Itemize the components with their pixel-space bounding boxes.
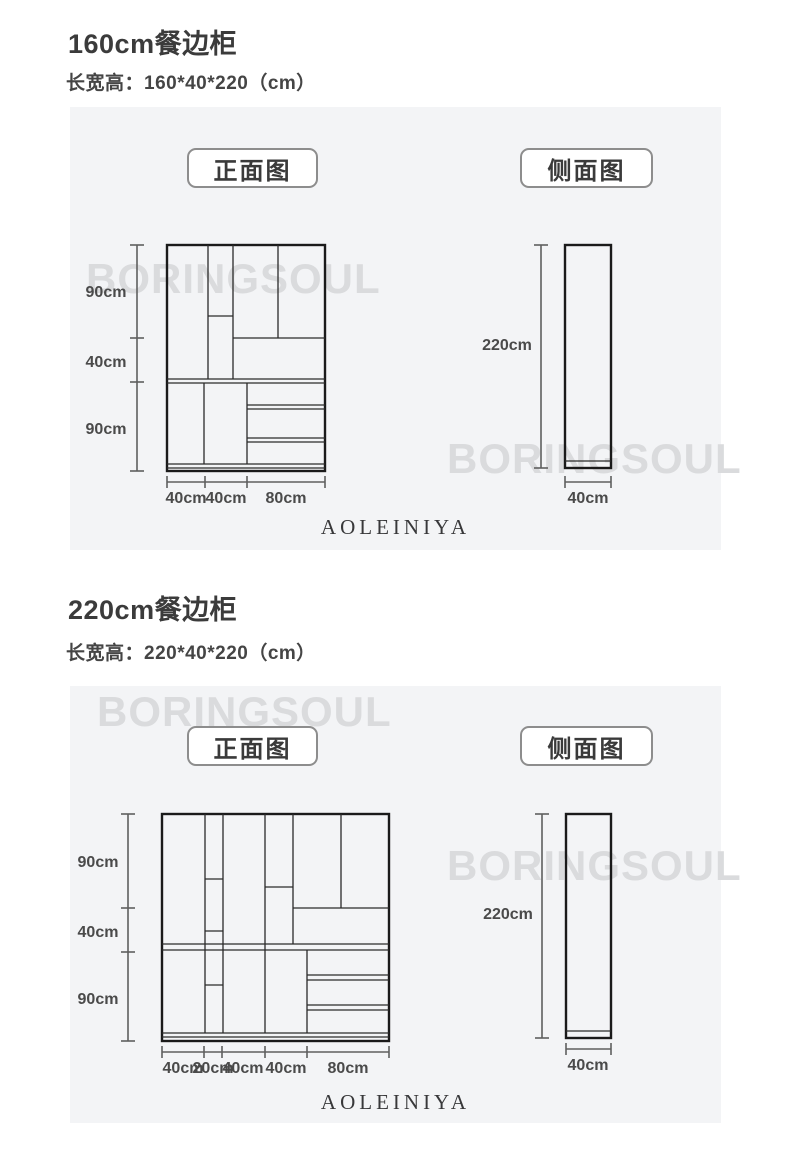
side-view-button[interactable]: 侧面图	[520, 726, 653, 766]
front-view-button[interactable]: 正面图	[187, 148, 318, 188]
section-title-160: 160cm餐边柜	[68, 22, 237, 61]
height-label: 90cm	[86, 421, 127, 438]
section-dimensions-220: 长宽高：220*40*220（cm）	[66, 638, 316, 665]
section-dimensions-160: 长宽高：160*40*220（cm）	[66, 68, 316, 95]
front-view-drawing	[167, 245, 325, 471]
side-width-label: 40cm	[568, 490, 609, 507]
width-label: 80cm	[328, 1060, 369, 1077]
side-height-label: 220cm	[483, 906, 533, 923]
width-label: 40cm	[166, 490, 207, 507]
width-label: 40cm	[223, 1060, 264, 1077]
front-view-button[interactable]: 正面图	[187, 726, 318, 766]
side-view-drawing: 220cm 40cm	[483, 814, 611, 1074]
width-label: 40cm	[206, 490, 247, 507]
front-view-drawing	[162, 814, 389, 1041]
side-view-button[interactable]: 侧面图	[520, 148, 653, 188]
front-width-dimension: 40cm 40cm 80cm	[166, 476, 325, 507]
width-label: 40cm	[266, 1060, 307, 1077]
brand-logo-text: AOLEINIYA	[70, 515, 721, 540]
side-view-drawing: 220cm 40cm	[482, 245, 611, 507]
brand-logo-text: AOLEINIYA	[70, 1090, 721, 1115]
front-width-dimension: 40cm 20cm 40cm 40cm 80cm	[162, 1046, 389, 1077]
height-label: 90cm	[78, 854, 119, 871]
front-height-dimension: 90cm 40cm 90cm	[86, 245, 144, 471]
section-title-220: 220cm餐边柜	[68, 588, 237, 627]
height-label: 90cm	[86, 284, 127, 301]
spec-panel-160: BORINGSOUL BORINGSOUL 正面图 侧面图	[70, 107, 721, 550]
product-spec-page: 160cm餐边柜 长宽高：160*40*220（cm） BORINGSOUL B…	[0, 0, 790, 1158]
height-label: 40cm	[86, 354, 127, 371]
side-width-label: 40cm	[568, 1057, 609, 1074]
height-label: 40cm	[78, 924, 119, 941]
spec-panel-220: BORINGSOUL BORINGSOUL 正面图 侧面图	[70, 686, 721, 1123]
width-label: 80cm	[266, 490, 307, 507]
height-label: 90cm	[78, 991, 119, 1008]
front-height-dimension: 90cm 40cm 90cm	[78, 814, 135, 1041]
side-height-label: 220cm	[482, 337, 532, 354]
